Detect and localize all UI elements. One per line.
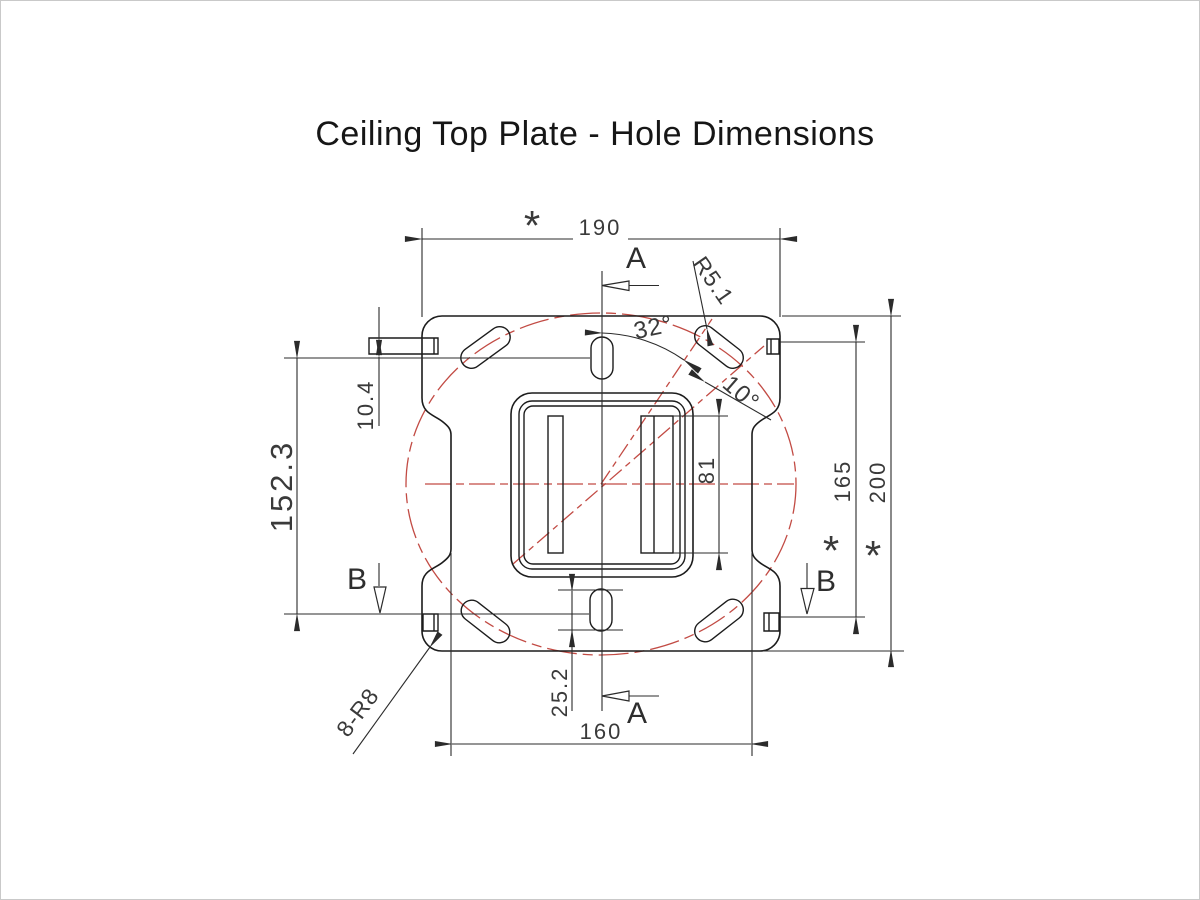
- dim-value-10deg: 10°: [717, 370, 764, 416]
- cad-drawing-canvas: Ceiling Top Plate - Hole Dimensions: [1, 1, 1200, 900]
- section-label-b-left: B: [347, 563, 367, 596]
- tab-top-right: [767, 339, 779, 354]
- dim-value-81: 81: [694, 456, 719, 484]
- asterisk-top: *: [524, 202, 540, 249]
- dim-value-8-r8: 8-R8: [331, 683, 384, 742]
- section-line-b: B B: [347, 563, 836, 614]
- slot-top-left: [457, 323, 515, 373]
- dim-value-25-2: 25.2: [547, 667, 572, 718]
- section-label-a-bottom: A: [627, 697, 647, 730]
- dim-left-height: 152.3: [264, 358, 590, 614]
- section-arrow-a-top: [602, 281, 629, 291]
- tab-bottom-right: [764, 613, 779, 631]
- leader-corner-radius: 8-R8: [331, 647, 430, 754]
- slot-top-right: [690, 321, 747, 372]
- dim-value-160: 160: [580, 719, 623, 744]
- dim-value-152-3: 152.3: [264, 440, 299, 533]
- leader-slot-radius: R5.1: [688, 251, 739, 329]
- drawing-sheet: Ceiling Top Plate - Hole Dimensions: [0, 0, 1200, 900]
- slot-bottom-center: [590, 589, 612, 631]
- dim-angles: 32° 10°: [602, 310, 771, 420]
- dim-value-200: 200: [865, 461, 890, 504]
- dim-tab-height: 10.4: [353, 307, 379, 430]
- section-arrow-a-bottom: [602, 691, 629, 701]
- drawing-title: Ceiling Top Plate - Hole Dimensions: [315, 115, 874, 153]
- dim-value-10-4: 10.4: [353, 380, 378, 431]
- asterisk-right-outer: *: [865, 532, 881, 579]
- asterisk-right-inner: *: [823, 527, 839, 574]
- dim-value-165: 165: [830, 460, 855, 503]
- section-arrow-b-right: [801, 589, 814, 615]
- dim-value-190: 190: [579, 215, 622, 240]
- dim-value-r5-1: R5.1: [688, 251, 739, 309]
- tab-top-left: [369, 338, 438, 354]
- tab-bottom-left: [423, 614, 438, 631]
- section-arrow-b-left: [374, 587, 386, 613]
- section-label-a-top: A: [626, 242, 646, 275]
